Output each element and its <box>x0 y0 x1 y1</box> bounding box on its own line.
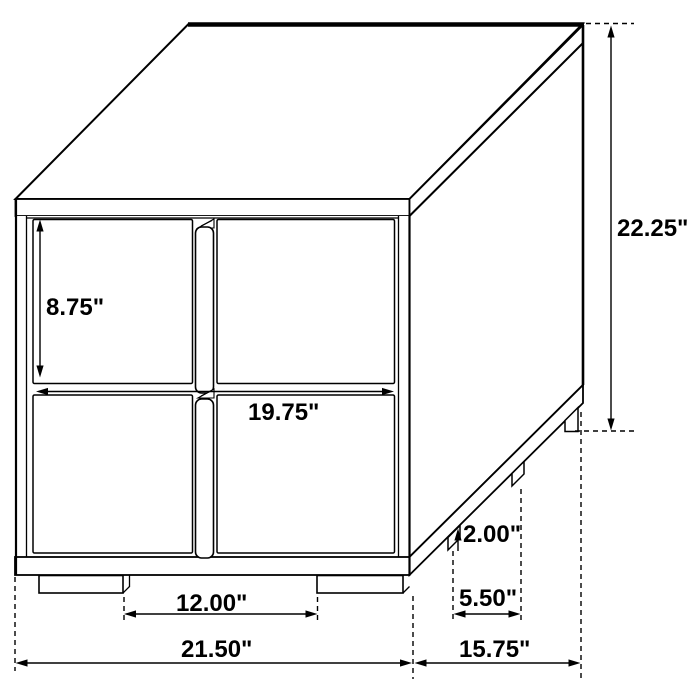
dimension-base-rail-height: 2.00" <box>454 521 521 551</box>
dimension-label: 2.00" <box>463 521 521 548</box>
dimension-drawing-svg: 8.75" 19.75" 22.25" 2.00" <box>0 0 700 700</box>
drawer-panel-top-right <box>217 220 395 384</box>
drawer-handles <box>196 219 215 558</box>
furniture-dimension-diagram: 8.75" 19.75" 22.25" 2.00" <box>0 0 700 700</box>
dimension-label: 22.25" <box>617 215 688 242</box>
handle-top-drawer <box>196 227 214 393</box>
cabinet-front-base-rail <box>15 557 410 575</box>
dimension-label: 12.00" <box>176 590 247 617</box>
dimension-label: 15.75" <box>459 636 530 663</box>
front-leg-right <box>317 576 403 594</box>
cabinet-top-slab-front <box>16 199 410 216</box>
dimension-label: 5.50" <box>459 585 517 612</box>
drawer-panel-bottom-left <box>33 395 193 553</box>
dimension-label: 8.75" <box>46 294 104 321</box>
front-leg-left <box>39 576 123 594</box>
dimension-label: 21.50" <box>181 636 252 663</box>
dimension-label: 19.75" <box>248 399 319 426</box>
handle-bottom-drawer <box>196 399 214 558</box>
